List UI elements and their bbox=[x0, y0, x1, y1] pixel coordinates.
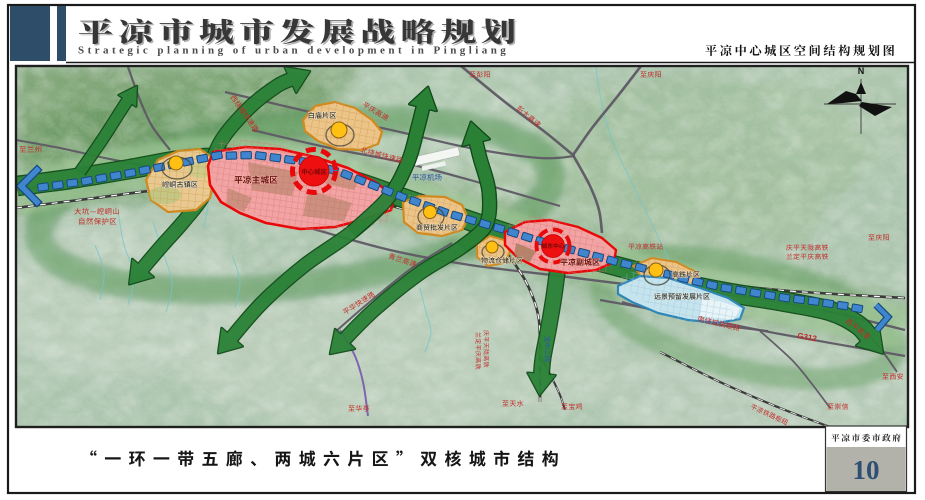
svg-text:Strategic planning of urban de: Strategic planning of urban development … bbox=[78, 45, 509, 57]
svg-text:N: N bbox=[858, 66, 865, 76]
svg-text:10: 10 bbox=[853, 455, 880, 485]
